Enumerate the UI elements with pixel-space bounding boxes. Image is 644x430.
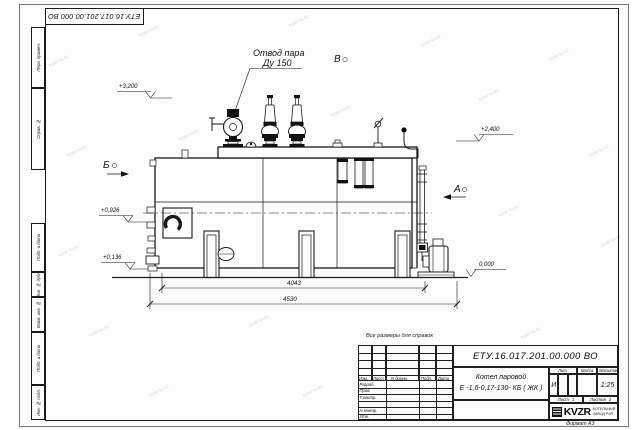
elevation-0136-value: +0,136	[103, 255, 122, 261]
view-a-label: А	[453, 184, 461, 195]
tb-header-list: Лист	[373, 377, 384, 381]
drawing-sheet: kotel-kv.kzkotel-kv.kzkotel-kv.kzkotel-k…	[0, 0, 644, 430]
title-block: Изм. Лист N докум. Подп. Дата Разраб. Пр…	[358, 345, 618, 420]
tb-rev-row-line	[358, 368, 453, 369]
scale-value-cell: 1:25	[597, 374, 618, 396]
steam-outlet-label-1: Отвод пара	[253, 48, 304, 58]
lit-cell-2	[558, 374, 567, 396]
scale-label: Масштаб	[599, 369, 619, 373]
tb-header-podp: Подп.	[421, 377, 432, 381]
safety-valve-1	[262, 95, 279, 147]
product-name-line1: Котел паровой	[476, 373, 526, 384]
scale-header-cell: Масштаб	[597, 367, 618, 374]
elevation-mark-3200: +3,200	[117, 84, 172, 98]
view-marker-b: Б	[103, 160, 129, 177]
view-v-label: В	[334, 54, 341, 65]
tb-row-utv: Утв.	[360, 415, 370, 419]
lit-label: Лит.	[558, 369, 568, 373]
format-note: Формат А3	[566, 421, 594, 427]
steam-outlet-valve	[209, 109, 243, 147]
elevation-mark-2400: +2,400	[456, 127, 513, 141]
lever-valve	[374, 118, 383, 147]
sheets-value: 2	[609, 397, 611, 402]
product-name-line2: Е -1,6-0,17-130- КБ ( ЖК )	[460, 384, 543, 395]
logo-caption-line2: ЗАВОД РЭП	[593, 412, 616, 416]
tb-row-line	[358, 414, 453, 415]
dimension-4043: 4043	[159, 273, 428, 293]
tb-row-nkontr: Н.контр.	[360, 409, 378, 413]
view-b-label: Б	[103, 160, 110, 171]
sheets-total-cell: Листов 2	[583, 396, 618, 403]
product-name-cell: Котел паровой Е -1,6-0,17-130- КБ ( ЖК )	[453, 367, 549, 400]
tb-rev-row-line	[358, 353, 453, 354]
logo-caption-line1: КОТЕЛЬНЫЙ	[593, 407, 616, 411]
designation-cell: ЕТУ.16.017.201.00.000 ВО	[453, 345, 618, 367]
tb-rev-row-line	[358, 360, 453, 361]
elevation-0926-value: +0,926	[101, 208, 120, 214]
tb-header-data: Дата	[438, 377, 449, 381]
steam-drum-strip	[218, 147, 417, 158]
safety-valve-2	[289, 95, 306, 147]
elevation-2400-value: +2,400	[481, 127, 500, 133]
lit-header-cell: Лит.	[549, 367, 577, 374]
manhole	[218, 248, 234, 261]
tb-row-razrab: Разраб.	[360, 383, 375, 387]
lit-value-cell: И	[549, 374, 558, 396]
designation-text: ЕТУ.16.017.201.00.000 ВО	[473, 351, 598, 362]
dimension-4530-value: 4530	[283, 296, 297, 303]
dimension-4043-value: 4043	[287, 280, 301, 287]
logo-caption: КОТЕЛЬНЫЙ ЗАВОД РЭП	[593, 407, 616, 416]
tb-row-tkontr: Т.контр.	[360, 396, 377, 400]
lit-cell-3	[568, 374, 577, 396]
steam-outlet-label-2: Ду 150	[262, 58, 291, 68]
elevation-3200-value: +3,200	[119, 84, 138, 90]
mass-label: Масса	[581, 369, 593, 373]
dimension-4530: 4530	[147, 273, 460, 309]
view-marker-a: А	[443, 184, 467, 200]
sheet-value: 1	[572, 397, 574, 402]
tb-header-izm: Изм.	[359, 377, 368, 381]
tb-row-line	[358, 401, 453, 402]
sheet-label: Лист	[558, 397, 569, 402]
tb-row-line	[358, 388, 453, 389]
sheet-number-cell: Лист 1	[549, 396, 583, 403]
tb-row-prov: Пров.	[360, 389, 371, 393]
kvzr-emblem-icon	[552, 407, 562, 417]
elevation-0000-value: 0,000	[479, 262, 495, 268]
mass-value-cell	[577, 374, 597, 396]
reference-note: Все размеры для справок	[366, 333, 433, 339]
blowdown-column	[417, 166, 428, 261]
kvzr-logo-text: KVZR	[564, 406, 591, 418]
elevation-mark-0136: +0,136	[101, 255, 148, 269]
tb-header-ndoc: N докум.	[391, 377, 408, 381]
dome-fitting	[245, 142, 258, 147]
burner-box	[163, 208, 192, 238]
mass-header-cell: Масса	[577, 367, 597, 374]
scale-value: 1:25	[601, 382, 615, 389]
view-marker-v: В	[334, 54, 347, 65]
lit-value: И	[551, 382, 556, 389]
elevation-mark-0000: 0,000	[466, 262, 506, 277]
elevation-mark-0926: +0,926	[99, 208, 147, 222]
sheets-label: Листов	[590, 397, 606, 402]
org-cell	[453, 400, 549, 420]
logo-cell: KVZR КОТЕЛЬНЫЙ ЗАВОД РЭП	[549, 403, 618, 420]
flanged-stub	[333, 140, 342, 147]
